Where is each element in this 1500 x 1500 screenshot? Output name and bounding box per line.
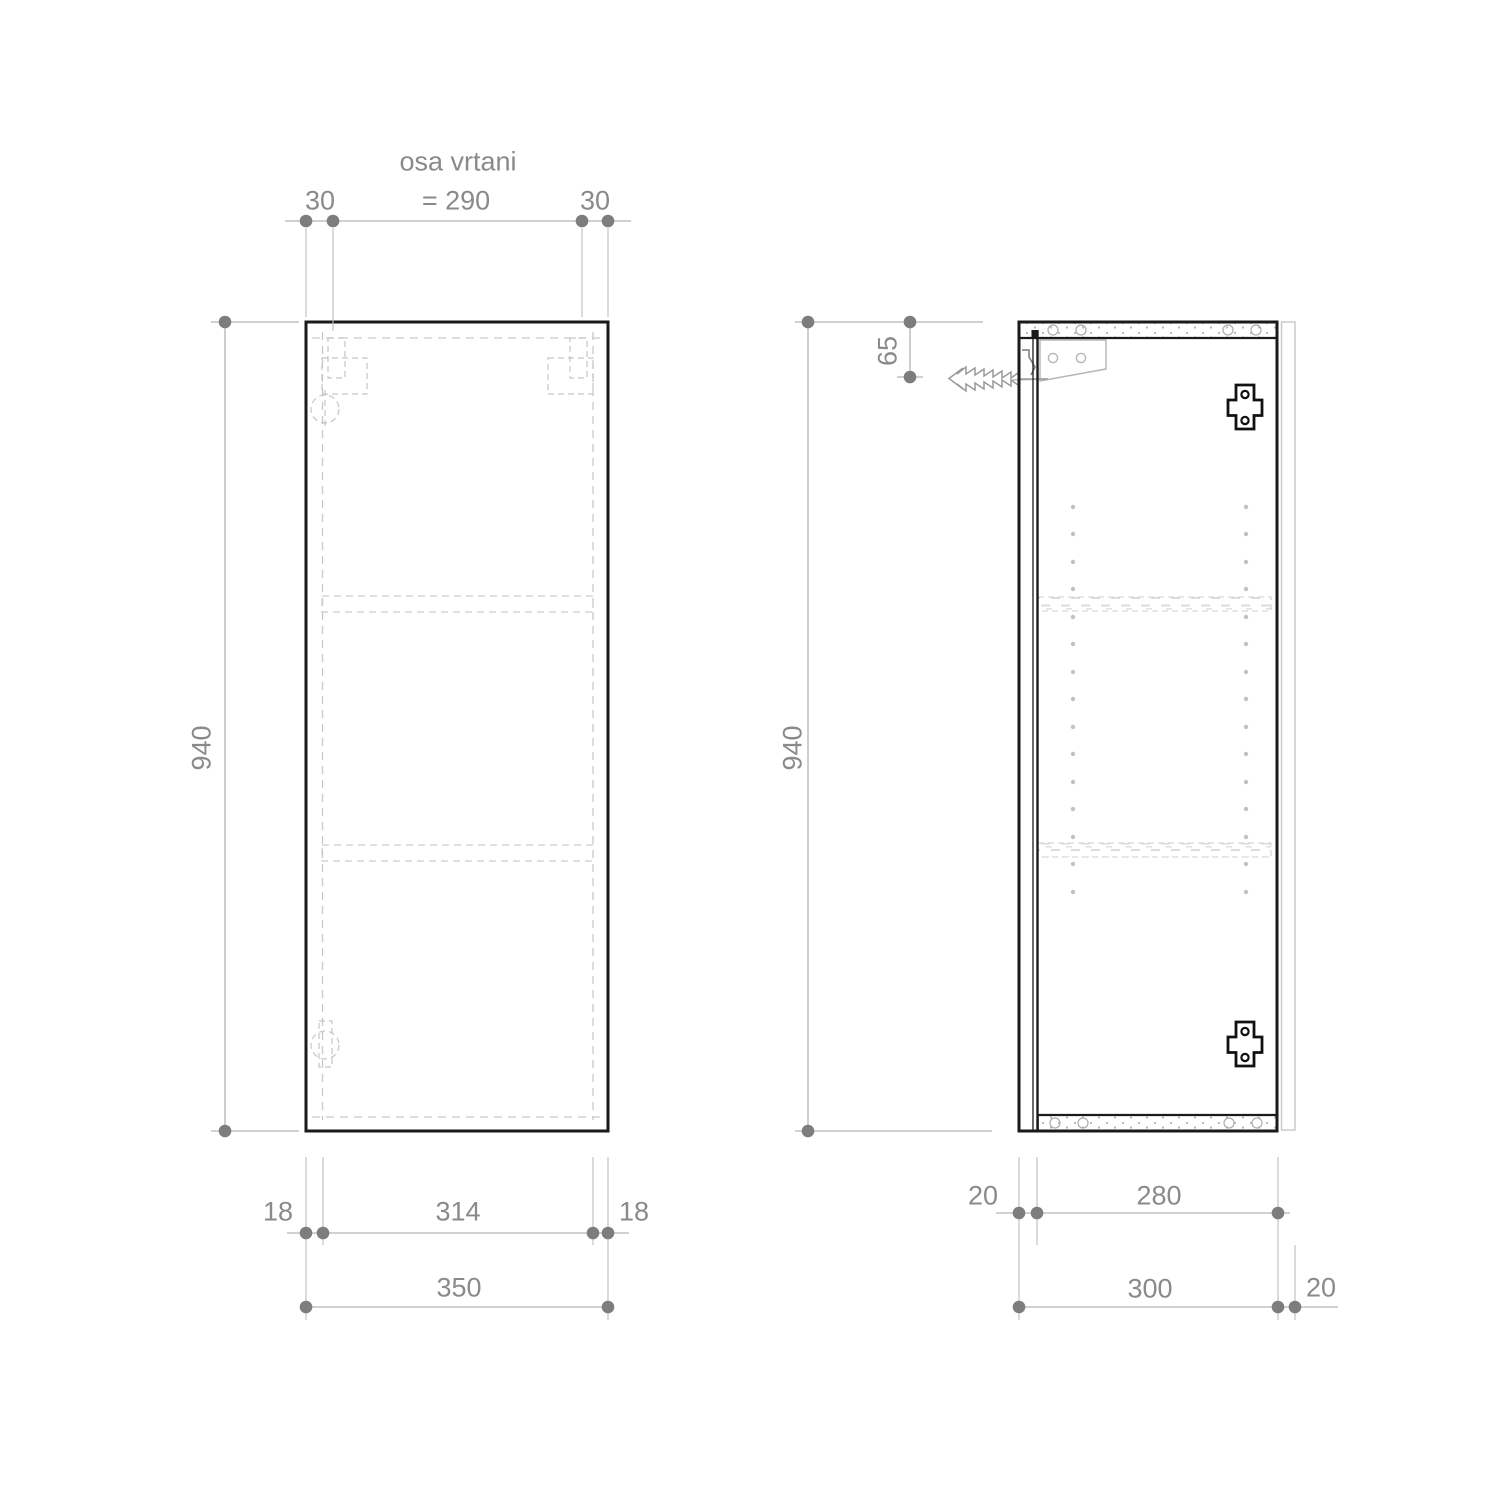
- side-bottom-panel: [1038, 1115, 1277, 1131]
- side-top-panel: [1019, 323, 1277, 338]
- front-shelf-bands: [322, 596, 593, 861]
- hinge-cross-plate-bottom: [1228, 1022, 1262, 1066]
- front-hinge-top-left: [311, 338, 367, 428]
- side-carcass-outline: [1019, 322, 1277, 1131]
- dimension-lines: [211, 215, 1338, 1320]
- extension-lines: [306, 228, 1295, 1320]
- side-shelf-pin-holes: [1071, 505, 1248, 894]
- side-view: [949, 322, 1295, 1131]
- front-hinge-bottom-left: [311, 1021, 339, 1067]
- drawing-canvas: [0, 0, 1500, 1500]
- side-back-rail: [1282, 322, 1296, 1130]
- technical-drawing-page: osa vrtani = 290 30 30 940 18 314 18 350…: [0, 0, 1500, 1500]
- side-door-edge: [1032, 330, 1039, 1131]
- front-view: [306, 322, 608, 1131]
- hinge-cross-plate-top: [1228, 385, 1262, 429]
- front-hidden-carcass-lines: [312, 332, 600, 1120]
- dim-dots: [219, 215, 1302, 1314]
- side-suspension-bracket: [1012, 340, 1106, 381]
- dim-lines: [211, 221, 1338, 1307]
- front-hinge-top-right: [548, 338, 593, 394]
- front-door-outline: [306, 322, 608, 1131]
